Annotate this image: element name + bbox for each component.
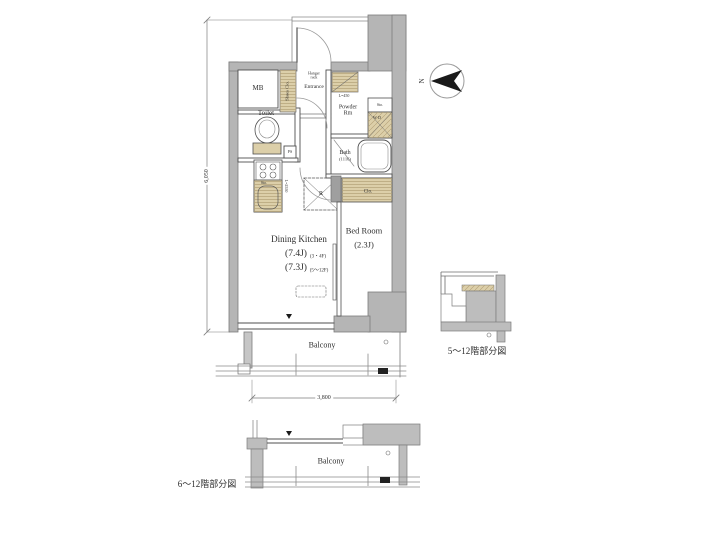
toilet-label: Toilet [258,110,274,118]
dining-table-icon [296,286,326,297]
north-arrow-icon [430,64,464,98]
window-marker-icon [286,314,292,319]
balcony-drain-icon [384,340,388,344]
powder-room-line2: Rm [339,111,357,117]
partial-plan-right [441,272,511,342]
balcony-drain-box [380,477,390,483]
floor-plan-drawing [0,0,720,540]
bath-label: Bath [339,150,350,156]
sink-icon [254,180,282,212]
partial-plan-bottom [245,420,420,488]
closet-label: Clo. [364,189,372,194]
floor-plan-stage: MB Shoes Clo. Hanger rack Entrance L=450… [0,0,720,540]
mb-label: MB [253,85,264,93]
window-marker-icon [286,431,292,436]
partial-right-caption: 5〜12階部分図 [448,347,507,357]
bedroom-size-label: (2.3J) [354,240,374,249]
washer-dryer-label: W·D [373,116,381,120]
entrance-label: Entrance [304,85,324,91]
dimension-vertical-label: 6,050 [204,167,210,185]
balcony-label: Balcony [309,342,336,351]
balcony-drain-box [378,368,388,374]
ps-label: PS [288,150,292,154]
kitchen-counter-length-label: L=2550 [284,180,288,193]
dk-size-3-4f-floors-label: (3・4F) [310,254,326,259]
bedroom-label: Bed Room [346,226,383,235]
partial-bottom-balcony-label: Balcony [318,458,345,467]
dining-kitchen-label: Dining Kitchen [271,235,327,245]
hanger-rack-line2: rack [308,76,320,80]
north-label: N [419,78,427,83]
shoes-closet-label: Shoes Clo. [286,81,291,101]
entrance-shelf-length-label: L=450 [339,94,350,98]
dk-size-5-12f-floors-label: (5〜12F) [310,268,329,273]
bedroom-closet-box [331,176,392,202]
hanger-rack-label: Hanger rack [308,72,320,81]
dimension-horizontal-label: 3,800 [315,395,333,401]
kitchen-storage-label: Sto. [261,181,267,185]
dk-size-3-4f-label: (7.4J) [285,249,307,259]
balcony-drain-icon [386,451,390,455]
refrigerator-label: R [319,191,323,197]
toilet-icon [253,117,281,154]
powder-room-label: Powder Rm [339,105,357,118]
balcony-window [238,323,334,329]
entrance-shelf-box [332,72,358,92]
powder-storage-label: Sto. [377,103,383,107]
bath-module-label: (1116) [339,158,351,163]
dk-size-5-12f-label: (7.3J) [285,263,307,273]
partial-bottom-caption: 6〜12階部分図 [178,480,237,490]
kitchen-counter [254,160,282,212]
partition-wall [333,202,341,316]
